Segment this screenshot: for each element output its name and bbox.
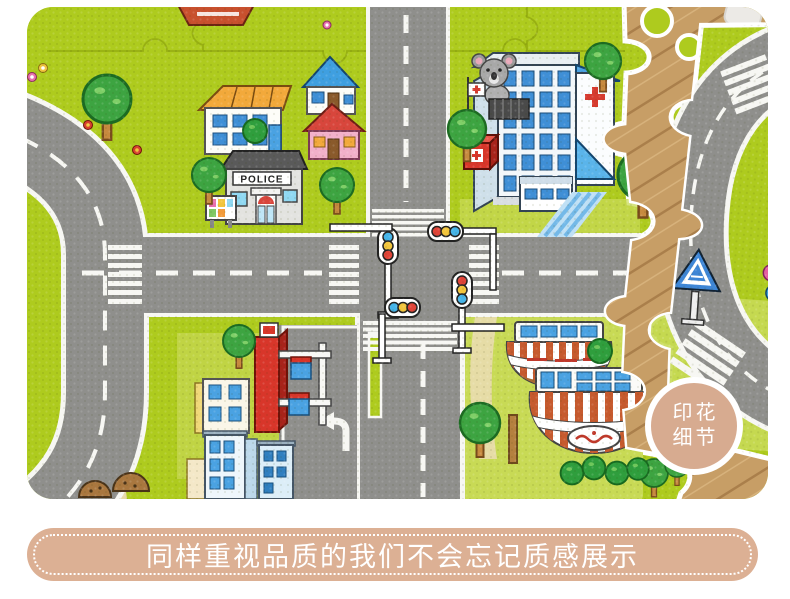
detail-badge: 印花 细节: [645, 377, 743, 475]
caption-banner: 同样重视品质的我们不会忘记质感展示: [27, 528, 758, 581]
caption-text: 同样重视品质的我们不会忘记质感展示: [146, 535, 639, 574]
badge-line1: 印花: [670, 401, 719, 426]
badge-line2: 细节: [670, 426, 719, 451]
